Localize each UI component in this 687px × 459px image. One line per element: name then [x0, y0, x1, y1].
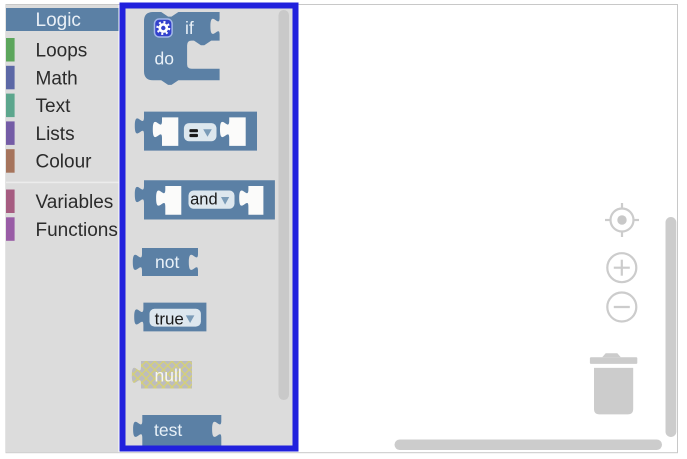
svg-text:Text: Text — [36, 96, 72, 117]
svg-text:Math: Math — [36, 68, 78, 89]
svg-text:do: do — [155, 48, 174, 68]
svg-text:Variables: Variables — [36, 192, 114, 213]
svg-text:Logic: Logic — [36, 10, 81, 31]
svg-text:and: and — [190, 191, 218, 209]
svg-text:null: null — [155, 366, 182, 386]
svg-text:Functions: Functions — [36, 220, 118, 241]
svg-text:test: test — [154, 420, 182, 440]
svg-text:true: true — [155, 309, 184, 328]
svg-text:Colour: Colour — [36, 152, 93, 173]
svg-text:Loops: Loops — [36, 41, 88, 62]
svg-text:if: if — [185, 18, 194, 38]
svg-text:Lists: Lists — [36, 124, 75, 145]
svg-text:not: not — [155, 252, 179, 272]
